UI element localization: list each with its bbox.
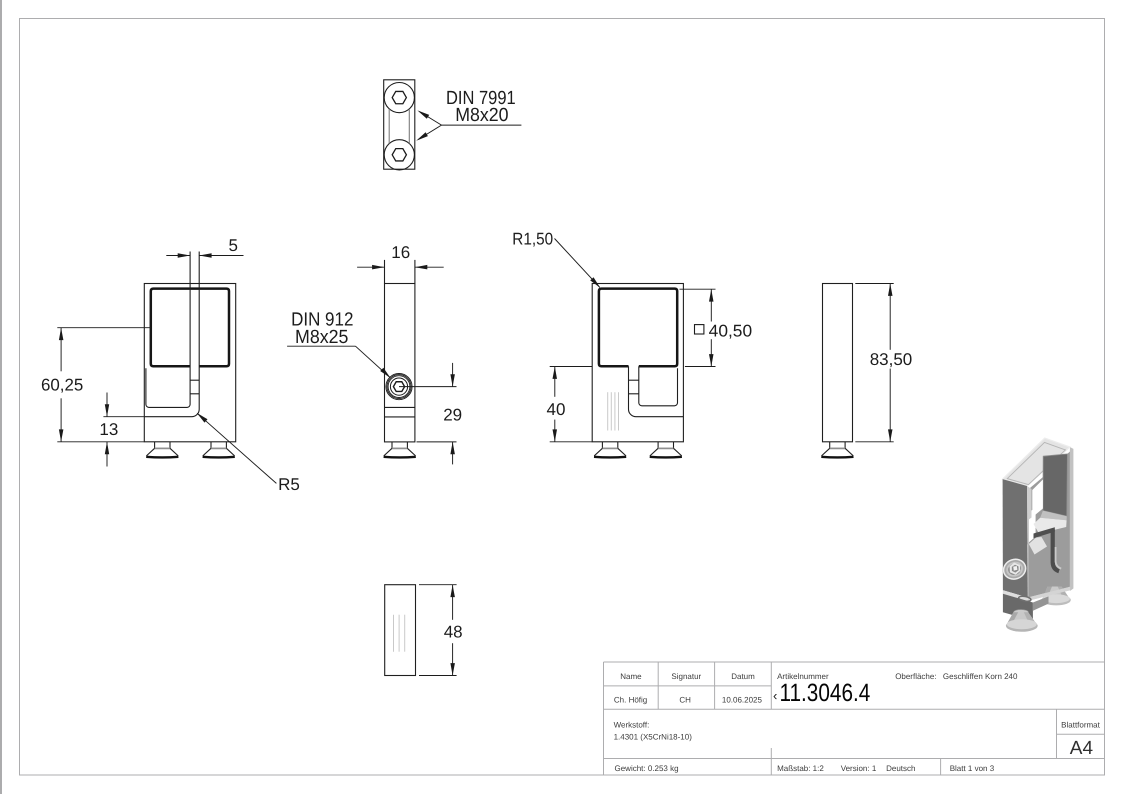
svg-text:48: 48 <box>444 622 463 641</box>
svg-text:1.4301 (X5CrNi18-10): 1.4301 (X5CrNi18-10) <box>614 733 693 742</box>
svg-text:Signatur: Signatur <box>671 672 701 681</box>
svg-text:29: 29 <box>443 406 462 425</box>
svg-text:A4: A4 <box>1070 738 1094 759</box>
svg-text:‹: ‹ <box>773 688 777 703</box>
svg-text:M8x25: M8x25 <box>295 327 348 348</box>
svg-text:R5: R5 <box>278 475 300 494</box>
svg-text:Maßstab: 1:2: Maßstab: 1:2 <box>777 764 824 773</box>
svg-text:M8x20: M8x20 <box>455 105 508 126</box>
svg-text:Geschliffen Korn 240: Geschliffen Korn 240 <box>943 672 1018 681</box>
svg-text:13: 13 <box>99 420 118 439</box>
svg-text:5: 5 <box>229 236 238 255</box>
svg-text:Version: 1: Version: 1 <box>841 764 877 773</box>
svg-text:CH: CH <box>679 695 691 704</box>
svg-text:40,50: 40,50 <box>709 322 752 341</box>
svg-text:Oberfläche:: Oberfläche: <box>895 672 936 681</box>
svg-text:Deutsch: Deutsch <box>886 764 915 773</box>
svg-text:40: 40 <box>547 400 566 419</box>
svg-text:11.3046.4: 11.3046.4 <box>780 679 871 707</box>
svg-text:Datum: Datum <box>731 672 755 681</box>
svg-text:10.06.2025: 10.06.2025 <box>722 695 763 704</box>
svg-text:R1,50: R1,50 <box>512 229 553 248</box>
svg-text:Ch. Höfig: Ch. Höfig <box>614 695 647 704</box>
svg-text:Name: Name <box>620 672 642 681</box>
svg-text:Blatt 1 von 3: Blatt 1 von 3 <box>950 764 995 773</box>
svg-text:60,25: 60,25 <box>41 375 83 394</box>
svg-text:83,50: 83,50 <box>870 350 913 369</box>
svg-text:Gewicht: 0.253 kg: Gewicht: 0.253 kg <box>615 764 679 773</box>
svg-text:16: 16 <box>391 243 410 262</box>
svg-text:Werkstoff:: Werkstoff: <box>614 721 650 730</box>
svg-text:Blattformat: Blattformat <box>1061 720 1100 729</box>
